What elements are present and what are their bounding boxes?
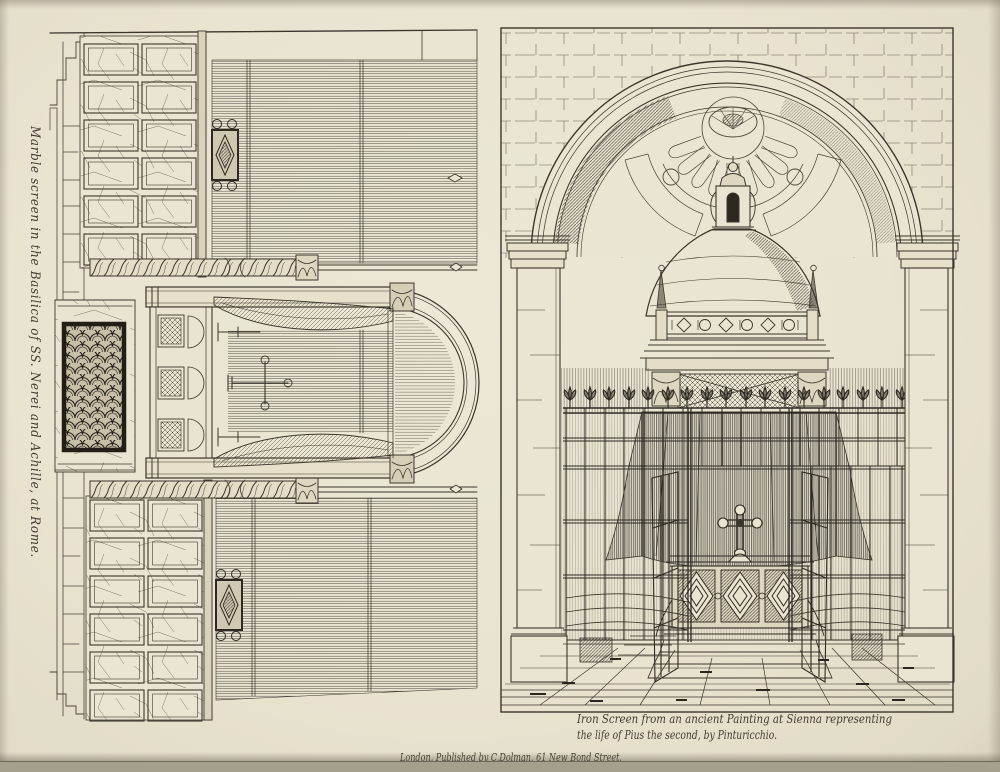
right-plate-caption-line1: Iron Screen from an ancient Painting at … (576, 711, 892, 726)
left-plate-coffered-panels-top (80, 31, 206, 277)
left-plate-diamond-ornament-top (212, 120, 238, 191)
left-plate-hatched-wall-bottom (216, 498, 477, 700)
right-plate-pilaster-right (895, 236, 960, 682)
left-plate-scallop-grille (55, 300, 135, 472)
altar-diamond-panel (721, 570, 759, 622)
right-plate-floor (501, 644, 953, 705)
engraving-canvas: Marble screen in the Basilica of SS. Ner… (0, 0, 1000, 772)
left-plate (50, 30, 479, 721)
left-plate-diamond-ornament-bottom (216, 570, 242, 641)
altar-curtain (606, 412, 872, 568)
right-plate-pilaster-left (505, 236, 570, 682)
right-plate-caption-line2: the life of Pius the second, by Pinturic… (577, 727, 777, 742)
left-plate-coffered-panels-bottom (86, 480, 212, 721)
publisher-imprint: London, Published by C.Dolman, 61 New Bo… (399, 751, 622, 764)
left-plate-caption: Marble screen in the Basilica of SS. Ner… (27, 125, 42, 558)
right-plate-altar (656, 556, 824, 636)
left-plate-altar (150, 307, 212, 458)
book-plate-page: Marble screen in the Basilica of SS. Ner… (0, 0, 1000, 772)
right-plate (501, 28, 960, 712)
left-plate-hatched-wall-top (212, 60, 477, 263)
left-plate-arch (384, 288, 479, 478)
altar-steps (648, 640, 832, 678)
